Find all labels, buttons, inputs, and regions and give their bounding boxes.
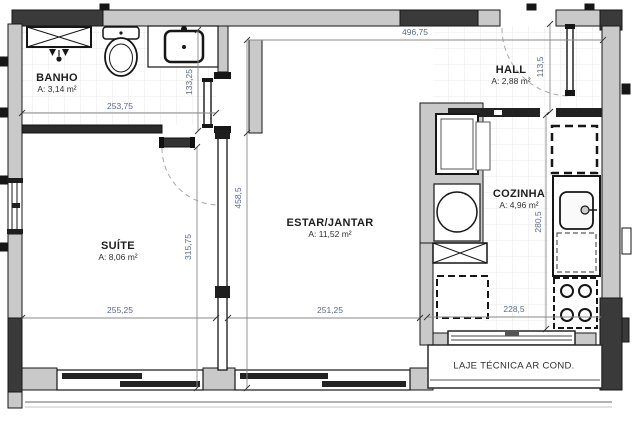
upper-cabinet-bar-right [556, 108, 602, 117]
sink-counter [553, 176, 600, 276]
dim-banho-depth: 133,25 [184, 69, 194, 95]
room-area: A: 2,88 m² [491, 76, 530, 86]
dim-estar-height: 458,5 [233, 187, 243, 208]
estar-window [235, 370, 410, 390]
faucet-icon [581, 206, 589, 214]
room-label-cozinha: COZINHA A: 4,96 m² [493, 188, 545, 210]
ac-vent-window [448, 331, 575, 345]
room-name: ESTAR/JANTAR [287, 217, 374, 229]
suite-door [159, 137, 219, 205]
washbasin-fixture [148, 26, 218, 67]
cabinet-crossed [433, 243, 487, 263]
room-name: SUÍTE [98, 240, 137, 252]
banho-door [202, 78, 213, 128]
room-label-banho: BANHO A: 3,14 m² [36, 72, 78, 94]
dim-suite-height: 315,75 [183, 234, 193, 260]
room-label-suite: SUÍTE A: 8,06 m² [98, 240, 137, 262]
floor-plan: BANHO A: 3,14 m² SUÍTE A: 8,06 m² ESTAR/… [0, 0, 635, 422]
suite-window [57, 370, 203, 390]
dim-cozinha-height: 280,5 [533, 211, 543, 232]
room-area: A: 4,96 m² [493, 200, 545, 210]
room-area: A: 11,52 m² [287, 229, 374, 239]
dim-top-width: 496,75 [402, 27, 428, 37]
dim-estar-width: 251,25 [317, 305, 343, 315]
room-area: A: 3,14 m² [36, 84, 78, 94]
room-name: BANHO [36, 72, 78, 84]
room-label-estar-jantar: ESTAR/JANTAR A: 11,52 m² [287, 217, 374, 239]
room-name: HALL [491, 64, 530, 76]
dim-suite-width: 255,25 [107, 305, 133, 315]
fridge-space-dashed [552, 126, 597, 173]
room-name: COZINHA [493, 188, 545, 200]
room-area: A: 8,06 m² [98, 252, 137, 262]
appliance-space-dashed [437, 276, 488, 318]
cooktop-fixture [554, 278, 597, 328]
room-label-hall: HALL A: 2,88 m² [491, 64, 530, 86]
toilet-fixture [103, 27, 139, 76]
left-window [7, 178, 23, 234]
oven-fixture [436, 114, 490, 174]
ground-lines [25, 402, 612, 407]
dim-cozinha-width: 228,5 [503, 304, 524, 314]
dim-hall-depth: 113,5 [535, 57, 545, 78]
dim-banho-width: 253,75 [107, 101, 133, 111]
laje-tecnica-label: LAJE TÉCNICA AR COND. [453, 361, 574, 372]
washer-fixture [434, 184, 480, 241]
